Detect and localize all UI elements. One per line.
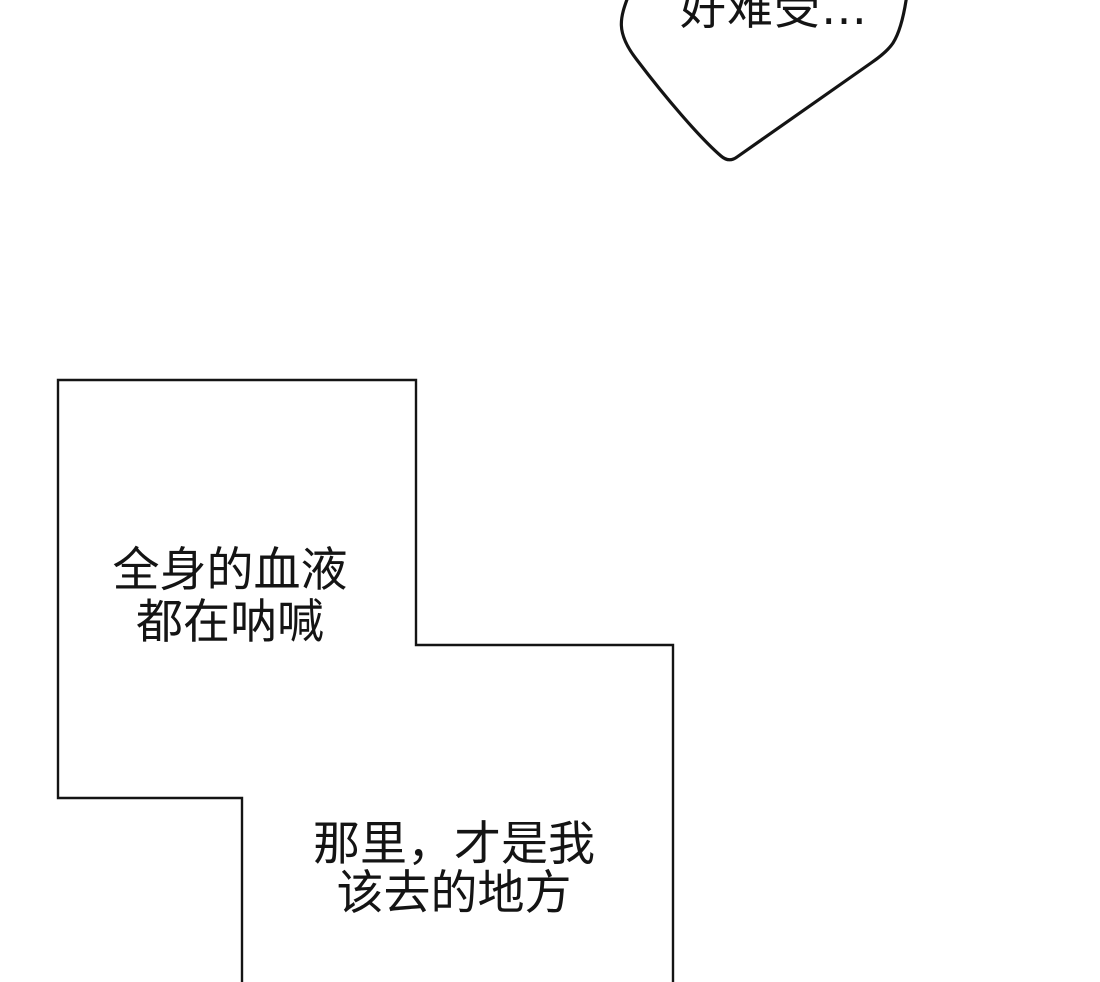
comic-page: 好难受… 全身的血液 都在呐喊 那里，才是我 该去的地方 (0, 0, 1100, 982)
caption-place-line2: 该去的地方 (284, 869, 624, 918)
caption-place-line1: 那里，才是我 (284, 820, 624, 869)
caption-place: 那里，才是我 该去的地方 (284, 820, 624, 918)
speech-bubble-text: 好难受… (680, 0, 868, 31)
caption-blood: 全身的血液 都在呐喊 (60, 545, 400, 649)
caption-blood-line1: 全身的血液 (60, 545, 400, 597)
caption-blood-line2: 都在呐喊 (60, 597, 400, 649)
